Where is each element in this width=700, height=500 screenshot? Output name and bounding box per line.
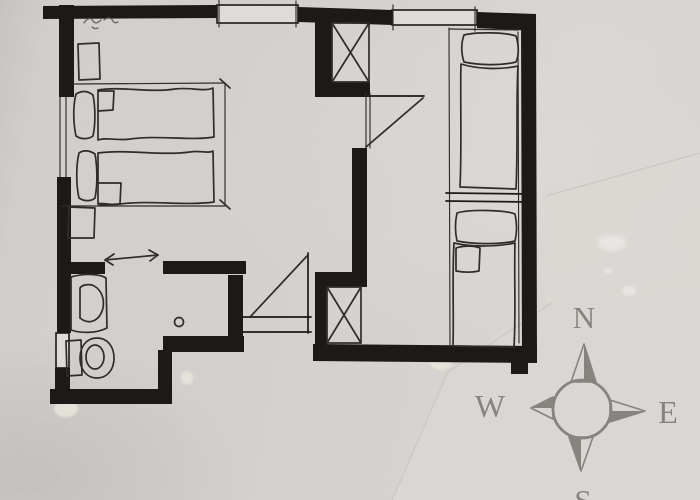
wall-bathroom-bottom	[50, 389, 172, 404]
door-right-room	[366, 93, 424, 148]
wall-right	[521, 14, 537, 362]
bench	[68, 207, 95, 238]
blanket-fold	[99, 183, 121, 205]
shaft-x-box-top	[315, 20, 370, 97]
alcove-line	[449, 28, 450, 345]
wall-corner-stub	[511, 361, 528, 374]
tape-piece-right	[545, 150, 700, 308]
photo-of-floor-plan: N W E S	[0, 0, 700, 500]
pencil-note-scribble	[84, 18, 118, 29]
bed-divider-line	[446, 201, 531, 202]
wall-left-middle	[57, 177, 71, 333]
wall-bathroom-right	[158, 350, 172, 391]
wall-right-room-left	[352, 148, 367, 287]
toilet-icon	[66, 338, 114, 378]
wall-bathroom-top-left	[64, 262, 105, 274]
compass-paper-card	[392, 290, 700, 500]
window-right-room-top	[392, 10, 477, 25]
mattress	[98, 88, 214, 140]
shaft-x-box-bottom	[315, 272, 363, 350]
shower-drain-icon	[175, 318, 184, 327]
pillow	[77, 151, 97, 201]
wall-shower-top	[163, 261, 246, 274]
nightstand	[78, 43, 100, 80]
wall-left-upper	[59, 5, 74, 97]
bedroom-left	[62, 18, 230, 238]
sink-icon	[71, 274, 107, 332]
bed-bottom	[77, 151, 214, 205]
entrance-door	[243, 253, 311, 333]
bed-upper-right	[460, 33, 518, 189]
dimension-lines	[62, 79, 230, 209]
bed-divider-line	[446, 193, 531, 194]
pillow	[462, 33, 519, 65]
compass-label-north: N	[573, 300, 595, 335]
door-swing	[251, 256, 307, 316]
mattress	[460, 64, 518, 189]
door-swing	[366, 98, 423, 147]
blanket-fold	[456, 246, 480, 272]
mattress	[98, 151, 214, 205]
compass-label-south: S	[574, 483, 591, 500]
window-bedroom-top	[217, 5, 298, 23]
wall-shower-bottom	[163, 336, 244, 352]
compass-label-west: W	[475, 388, 506, 424]
pillow	[74, 92, 95, 139]
blanket-fold	[98, 91, 114, 111]
bed-top	[74, 88, 214, 140]
floor-plan-drawing: N W E S	[0, 0, 700, 500]
pillow	[456, 210, 517, 243]
compass-label-east: E	[658, 394, 678, 430]
sliding-door-arrow	[105, 250, 158, 265]
